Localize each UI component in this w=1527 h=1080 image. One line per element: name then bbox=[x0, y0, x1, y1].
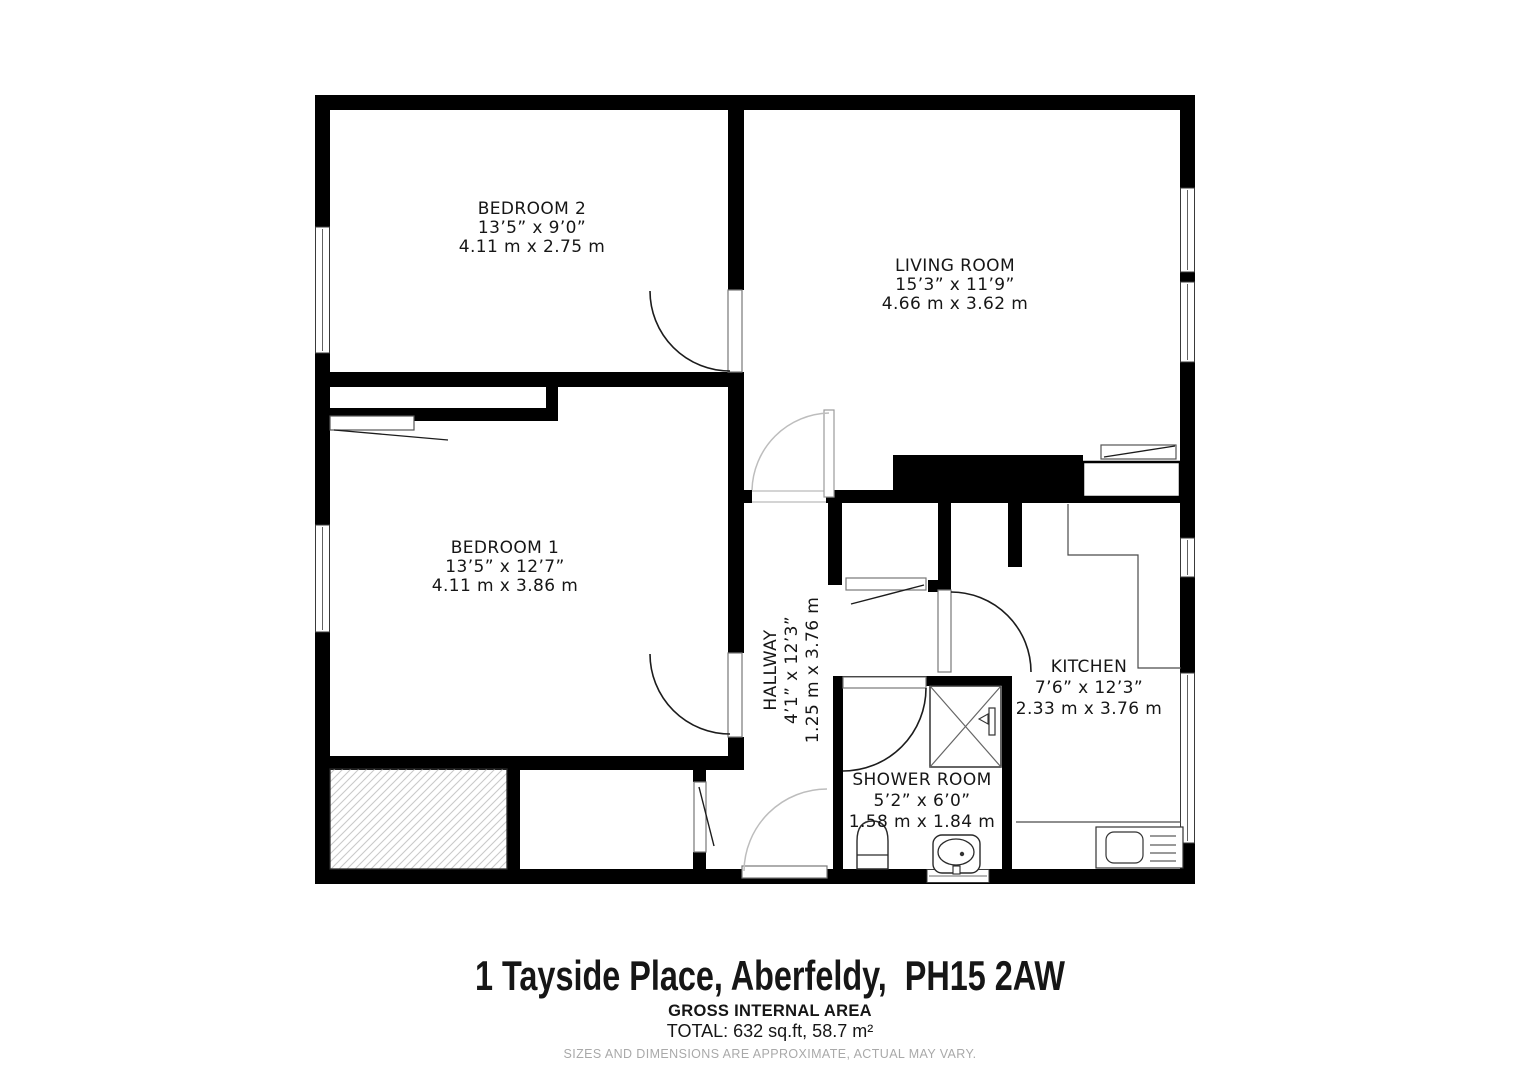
hallway-size-metric: 1.25 m x 3.76 m bbox=[803, 597, 823, 744]
window-living-lower bbox=[1181, 282, 1195, 362]
wall-storage-right bbox=[507, 756, 520, 869]
gross-internal-area-heading: GROSS INTERNAL AREA bbox=[668, 1002, 872, 1020]
shower-size-imperial: 5’2” x 6’0” bbox=[874, 791, 971, 811]
bedroom1-size-imperial: 13’5” x 12’7” bbox=[445, 557, 564, 577]
window-kitchen-upper bbox=[1181, 538, 1195, 577]
chimney-breast bbox=[893, 455, 1083, 503]
wall-hallway-left-upper bbox=[728, 503, 744, 653]
hatched-storage-area bbox=[330, 769, 507, 869]
basin-icon bbox=[933, 835, 980, 874]
wall-divider-upper bbox=[728, 110, 744, 290]
window-living-upper bbox=[1181, 188, 1195, 272]
shower-size-metric: 1.58 m x 1.84 m bbox=[849, 812, 996, 832]
wall-bedroom1-bottom bbox=[315, 756, 744, 770]
wall-kitchen-stub bbox=[1008, 503, 1022, 567]
bedroom1-name: BEDROOM 1 bbox=[451, 538, 560, 558]
window-bedroom2 bbox=[316, 227, 330, 353]
living-size-imperial: 15’3” x 11’9” bbox=[895, 275, 1014, 295]
kitchen-size-imperial: 7’6” x 12’3” bbox=[1035, 678, 1143, 698]
hallway-size-imperial: 4’1” x 12’3” bbox=[782, 616, 802, 724]
wall-cupboard-left bbox=[828, 497, 842, 585]
kitchen-name: KITCHEN bbox=[1051, 657, 1127, 677]
bedroom2-size-imperial: 13’5” x 9’0” bbox=[478, 218, 586, 238]
wall-cupboard2-stub-bottom bbox=[693, 852, 706, 869]
shower-tray bbox=[930, 686, 1001, 767]
wall-divider-mid bbox=[728, 387, 744, 490]
window-kitchen-lower bbox=[1181, 673, 1195, 843]
window-bedroom1 bbox=[316, 525, 330, 632]
address-title: 1 Tayside Place, Aberfeldy, PH15 2AW bbox=[475, 952, 1065, 999]
wall-cupboard-right bbox=[938, 497, 951, 592]
wall-cupboard2-stub-top bbox=[693, 770, 706, 782]
kitchen-size-metric: 2.33 m x 3.76 m bbox=[1016, 699, 1163, 719]
wall-shower-left bbox=[833, 676, 843, 869]
living-name: LIVING ROOM bbox=[895, 256, 1015, 276]
wall-outer-top bbox=[315, 95, 1195, 110]
wall-bedroom2-bottom bbox=[315, 372, 744, 387]
hallway-name: HALLWAY bbox=[761, 629, 781, 710]
shower-name: SHOWER ROOM bbox=[852, 770, 991, 790]
radiator-living-icon bbox=[1101, 445, 1176, 459]
fireplace-hearth bbox=[1083, 462, 1180, 497]
bedroom1-size-metric: 4.11 m x 3.86 m bbox=[432, 576, 579, 596]
total-area-value: TOTAL: 632 sq.ft, 58.7 m² bbox=[667, 1021, 873, 1041]
floor-plan: BEDROOM 2 13’5” x 9’0” 4.11 m x 2.75 m L… bbox=[0, 0, 1527, 1080]
wall-hall-corner bbox=[728, 490, 752, 503]
background bbox=[0, 0, 1527, 1080]
bedroom2-name: BEDROOM 2 bbox=[478, 199, 587, 219]
room-label-bedroom-2: BEDROOM 2 13’5” x 9’0” 4.11 m x 2.75 m bbox=[459, 199, 606, 257]
wall-shower-right bbox=[1002, 676, 1012, 869]
kitchen-sink-icon bbox=[1096, 827, 1183, 868]
living-size-metric: 4.66 m x 3.62 m bbox=[882, 294, 1029, 314]
room-label-living-room: LIVING ROOM 15’3” x 11’9” 4.66 m x 3.62 … bbox=[882, 256, 1029, 314]
room-label-bedroom-1: BEDROOM 1 13’5” x 12’7” 4.11 m x 3.86 m bbox=[432, 538, 579, 596]
living-room-threshold bbox=[752, 490, 826, 503]
bedroom2-size-metric: 4.11 m x 2.75 m bbox=[459, 237, 606, 257]
floor-plan-page: BEDROOM 2 13’5” x 9’0” 4.11 m x 2.75 m L… bbox=[0, 0, 1527, 1080]
disclaimer-text: SIZES AND DIMENSIONS ARE APPROXIMATE, AC… bbox=[564, 1047, 977, 1061]
